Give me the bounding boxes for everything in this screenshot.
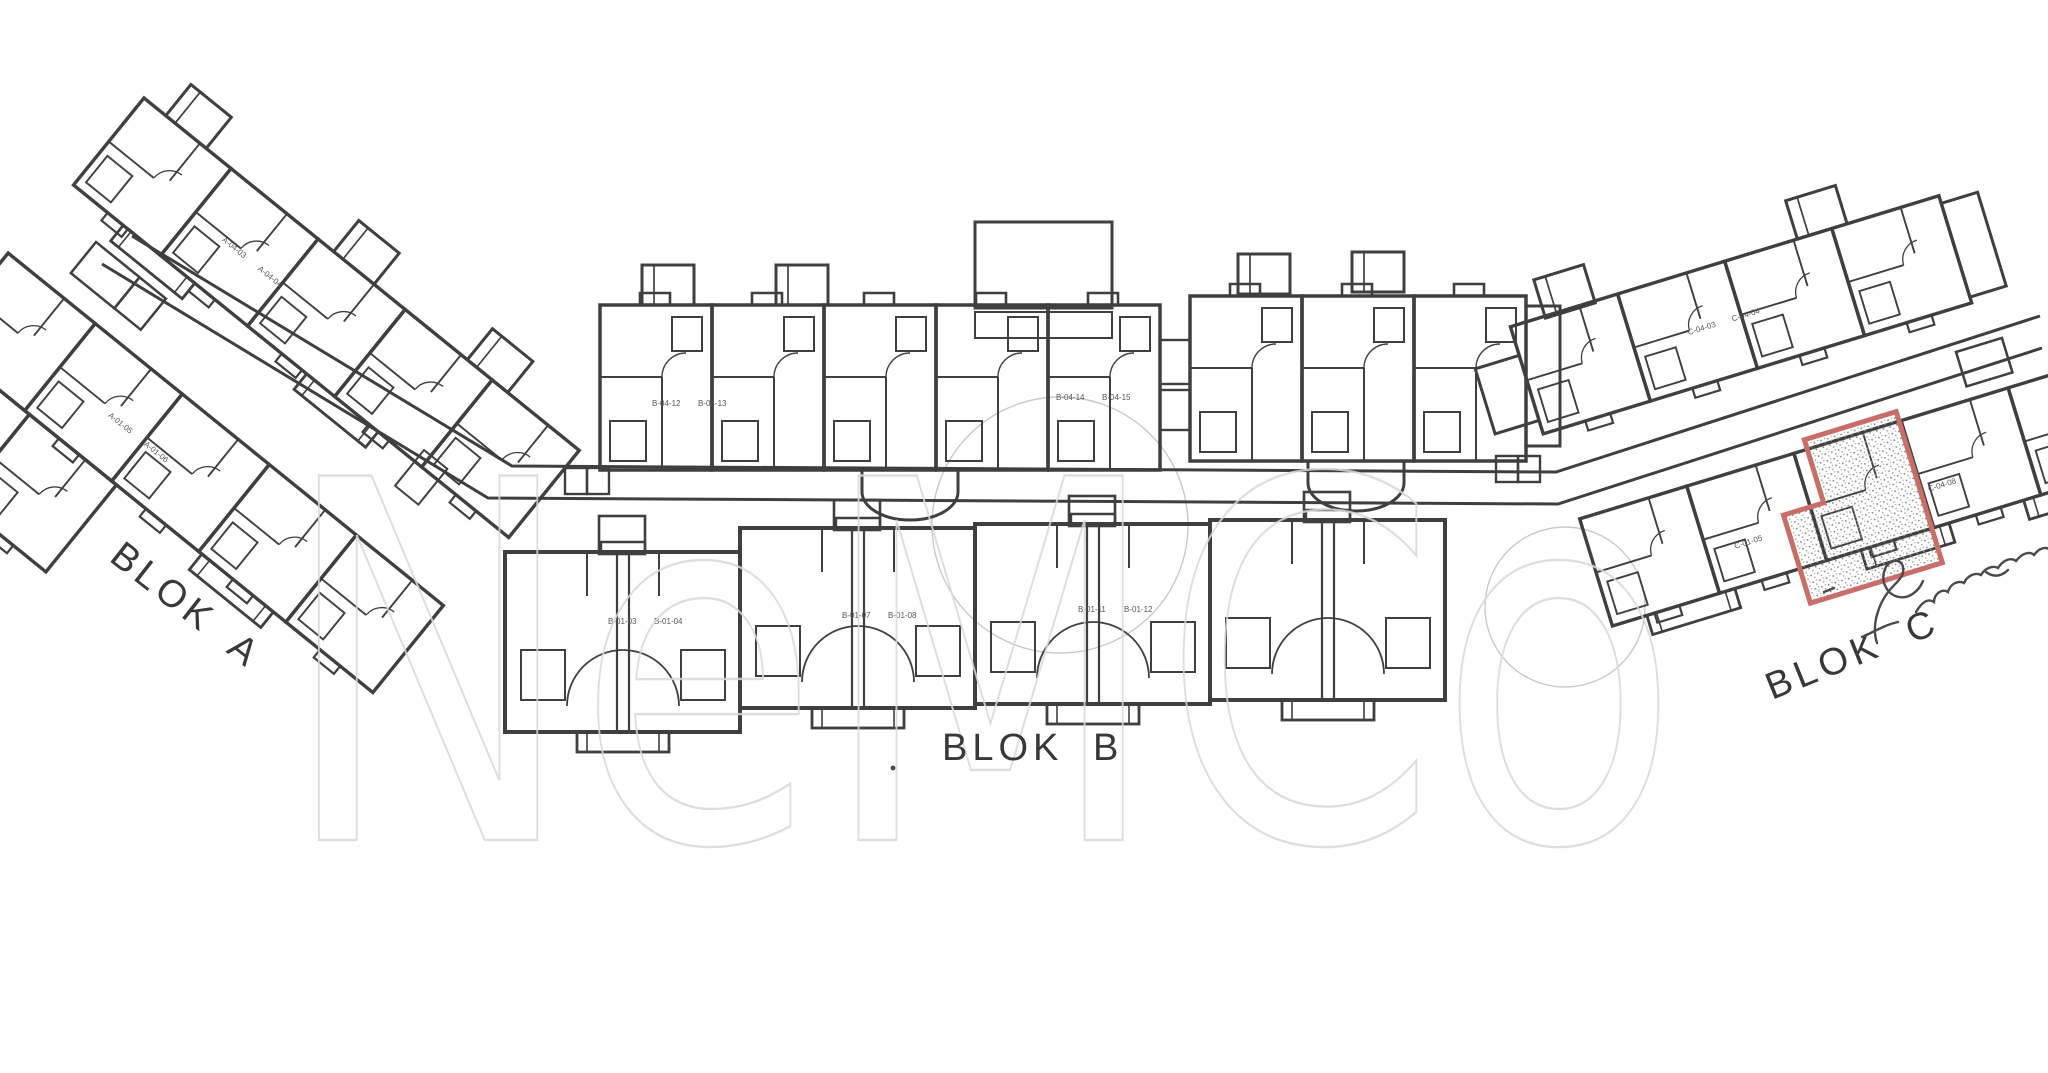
unit-label: A-04-04 (256, 264, 284, 289)
balcony (334, 220, 400, 284)
scan-speck (891, 766, 896, 771)
floorplan-scan: A-04-03 A-04-04 A-01-05 A-01-06 (0, 0, 2048, 1073)
ramp-hatched-band (975, 312, 1112, 338)
apartment-unit (1725, 228, 1868, 377)
blok-a-label: BLOK A (102, 534, 269, 677)
apartment-unit (1832, 196, 1975, 345)
stair-core-hatched (1956, 338, 2012, 386)
unit-label: C-04-03 (1687, 320, 1718, 337)
unit-label: C-04-04 (1731, 306, 1762, 323)
apartment-unit (0, 414, 116, 579)
unit-label: C-01-05 (1733, 533, 1764, 550)
balcony (642, 265, 694, 305)
balcony (776, 265, 828, 305)
apartment-unit (18, 324, 182, 489)
balcony (1786, 186, 1847, 239)
apartment-unit (0, 344, 29, 509)
apartment-unit (67, 98, 231, 263)
unit-label: A-04-03 (220, 235, 248, 260)
blok-c-label: BLOK C (1760, 601, 1946, 709)
ramp-hatched-block (975, 222, 1112, 308)
blok-b-label: BLOK B (942, 727, 1123, 769)
apartment-unit (2008, 355, 2048, 504)
watermark: NeMCo (280, 376, 1680, 958)
balcony (1238, 254, 1290, 294)
balcony (1352, 252, 1404, 292)
unit-label: A-01-05 (106, 411, 134, 436)
balcony (166, 85, 232, 149)
highlighted-unit (1764, 412, 1942, 603)
